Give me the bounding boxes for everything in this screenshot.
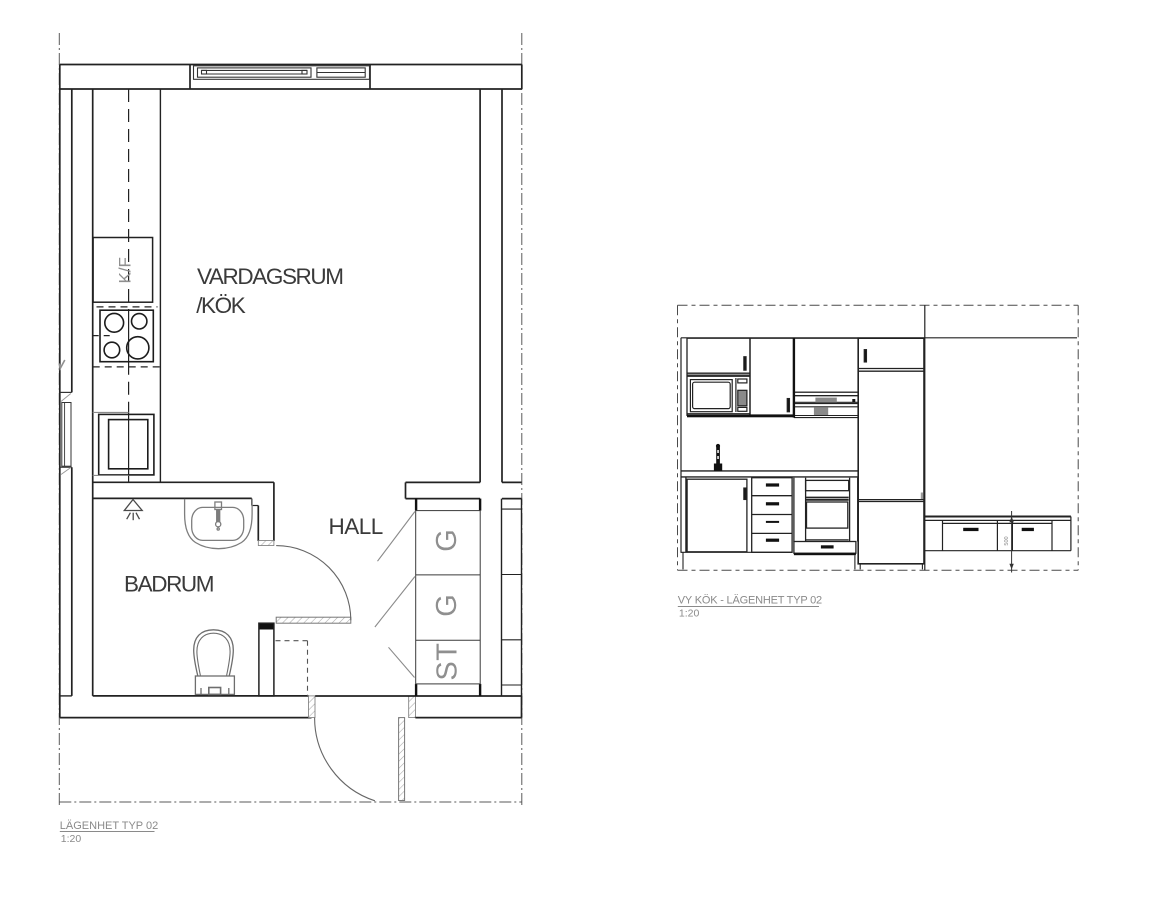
svg-text:HALL: HALL bbox=[329, 514, 383, 539]
svg-text:K/F: K/F bbox=[116, 257, 135, 283]
svg-text:1:20: 1:20 bbox=[61, 833, 82, 845]
svg-text:/KÖK: /KÖK bbox=[196, 293, 246, 318]
svg-text:BADRUM: BADRUM bbox=[124, 572, 213, 597]
svg-text:500: 500 bbox=[1004, 536, 1010, 545]
svg-text:ST: ST bbox=[432, 643, 464, 681]
svg-text:G: G bbox=[431, 529, 463, 552]
svg-text:VY KÖK - LÄGENHET TYP 02: VY KÖK - LÄGENHET TYP 02 bbox=[678, 595, 822, 607]
svg-text:1:20: 1:20 bbox=[679, 607, 700, 619]
svg-text:LÄGENHET TYP 02: LÄGENHET TYP 02 bbox=[60, 820, 158, 832]
svg-text:VARDAGSRUM: VARDAGSRUM bbox=[197, 264, 343, 289]
svg-text:G: G bbox=[431, 594, 463, 617]
